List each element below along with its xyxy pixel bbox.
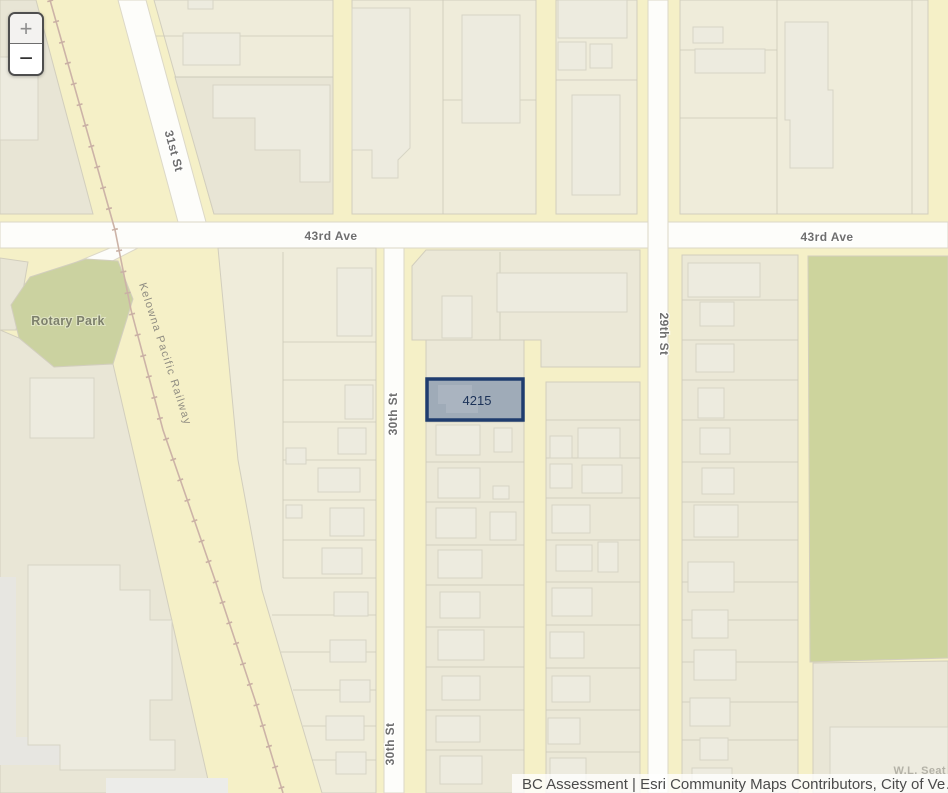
- map-svg: 4215 31st St 43rd Ave 43rd Ave 30th St 3…: [0, 0, 948, 793]
- street-label-43rd-left: 43rd Ave: [304, 229, 357, 243]
- street-30th: [384, 248, 404, 793]
- attribution-bar: BC Assessment | Esri Community Maps Cont…: [512, 774, 948, 793]
- street-label-29th: 29th St: [657, 313, 671, 356]
- map-canvas[interactable]: 4215 31st St 43rd Ave 43rd Ave 30th St 3…: [0, 0, 948, 793]
- zoom-in-button[interactable]: +: [10, 14, 42, 44]
- park-label: Rotary Park: [31, 314, 104, 328]
- zoom-control: + −: [8, 12, 44, 76]
- school-field-polygon: [808, 256, 948, 662]
- street-label-43rd-right: 43rd Ave: [800, 230, 853, 244]
- street-label-30th-upper: 30th St: [386, 393, 400, 436]
- street-29th: [648, 0, 668, 793]
- selected-parcel[interactable]: 4215: [427, 379, 523, 420]
- attribution-text: BC Assessment | Esri Community Maps Cont…: [522, 776, 948, 793]
- selected-parcel-label: 4215: [463, 393, 492, 408]
- zoom-out-button[interactable]: −: [10, 44, 42, 74]
- street-label-30th-lower: 30th St: [383, 723, 397, 766]
